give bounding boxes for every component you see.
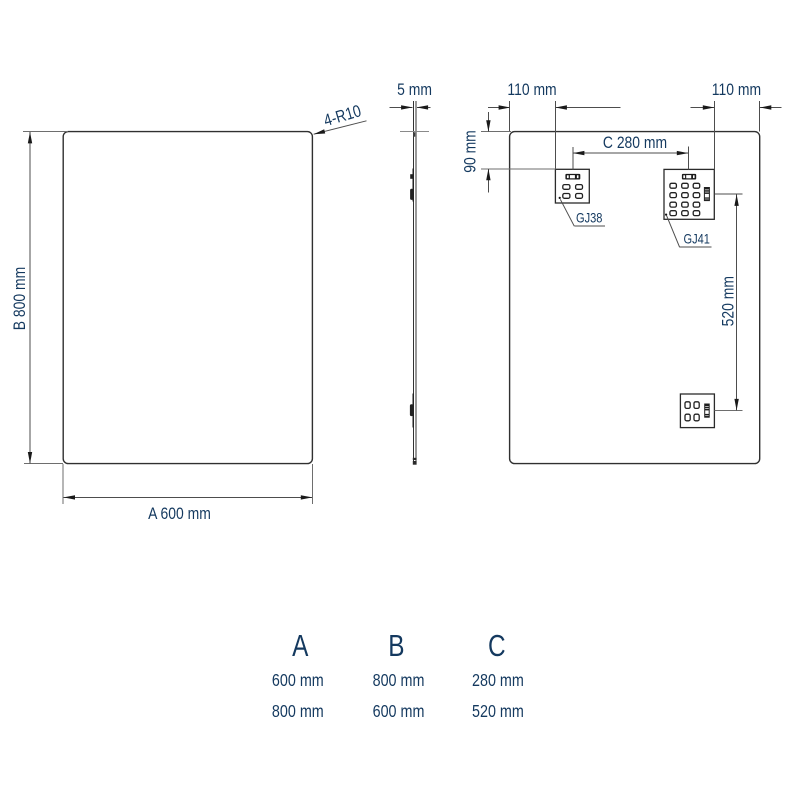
svg-text:520 mm: 520 mm bbox=[472, 703, 524, 722]
svg-text:C 280 mm: C 280 mm bbox=[603, 134, 667, 153]
svg-text:90 mm: 90 mm bbox=[461, 130, 480, 173]
svg-text:B 800 mm: B 800 mm bbox=[11, 267, 30, 330]
svg-text:B: B bbox=[388, 628, 404, 662]
svg-text:GJ41: GJ41 bbox=[684, 232, 711, 247]
svg-text:110 mm: 110 mm bbox=[507, 81, 556, 100]
svg-text:A: A bbox=[292, 628, 309, 662]
svg-text:110 mm: 110 mm bbox=[712, 81, 761, 100]
svg-text:GJ38: GJ38 bbox=[576, 211, 603, 226]
svg-text:520 mm: 520 mm bbox=[719, 276, 738, 326]
svg-text:C: C bbox=[488, 628, 506, 662]
svg-text:800 mm: 800 mm bbox=[373, 672, 425, 691]
svg-text:A 600 mm: A 600 mm bbox=[148, 505, 211, 524]
svg-text:800 mm: 800 mm bbox=[272, 703, 324, 722]
svg-text:600 mm: 600 mm bbox=[373, 703, 425, 722]
svg-text:600 mm: 600 mm bbox=[272, 672, 324, 691]
svg-text:5 mm: 5 mm bbox=[397, 81, 432, 100]
svg-text:280 mm: 280 mm bbox=[472, 672, 524, 691]
